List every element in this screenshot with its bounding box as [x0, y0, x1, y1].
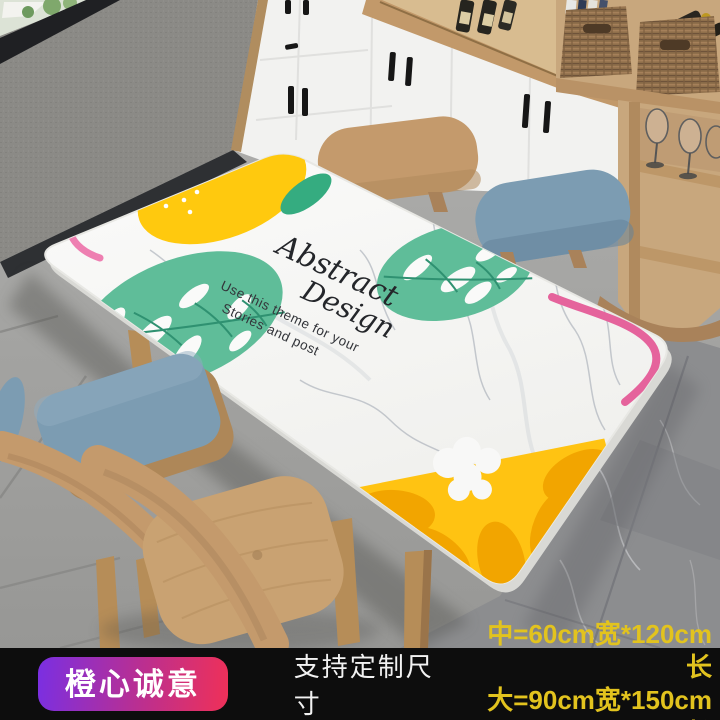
brand-badge-label: 橙心诚意 — [65, 669, 201, 700]
wicker-basket — [560, 6, 632, 78]
size-options: 中=60cm宽*120cm长 大=90cm宽*150cm长 — [462, 618, 712, 720]
size-line-large: 大=90cm宽*150cm长 — [462, 684, 712, 720]
customization-note: 支持定制尺寸 — [294, 647, 462, 720]
brand-badge: 橙心诚意 — [38, 657, 228, 711]
wine-bottles-top — [455, 0, 517, 35]
size-line-medium: 中=60cm宽*120cm长 — [462, 618, 712, 684]
product-photo: Abstract Design Use this theme for your … — [0, 0, 720, 720]
promo-bar: 橙心诚意 支持定制尺寸 中=60cm宽*120cm长 大=90cm宽*150cm… — [0, 648, 720, 720]
wicker-basket — [636, 16, 720, 96]
dining-room-scene: Abstract Design Use this theme for your … — [0, 0, 720, 648]
